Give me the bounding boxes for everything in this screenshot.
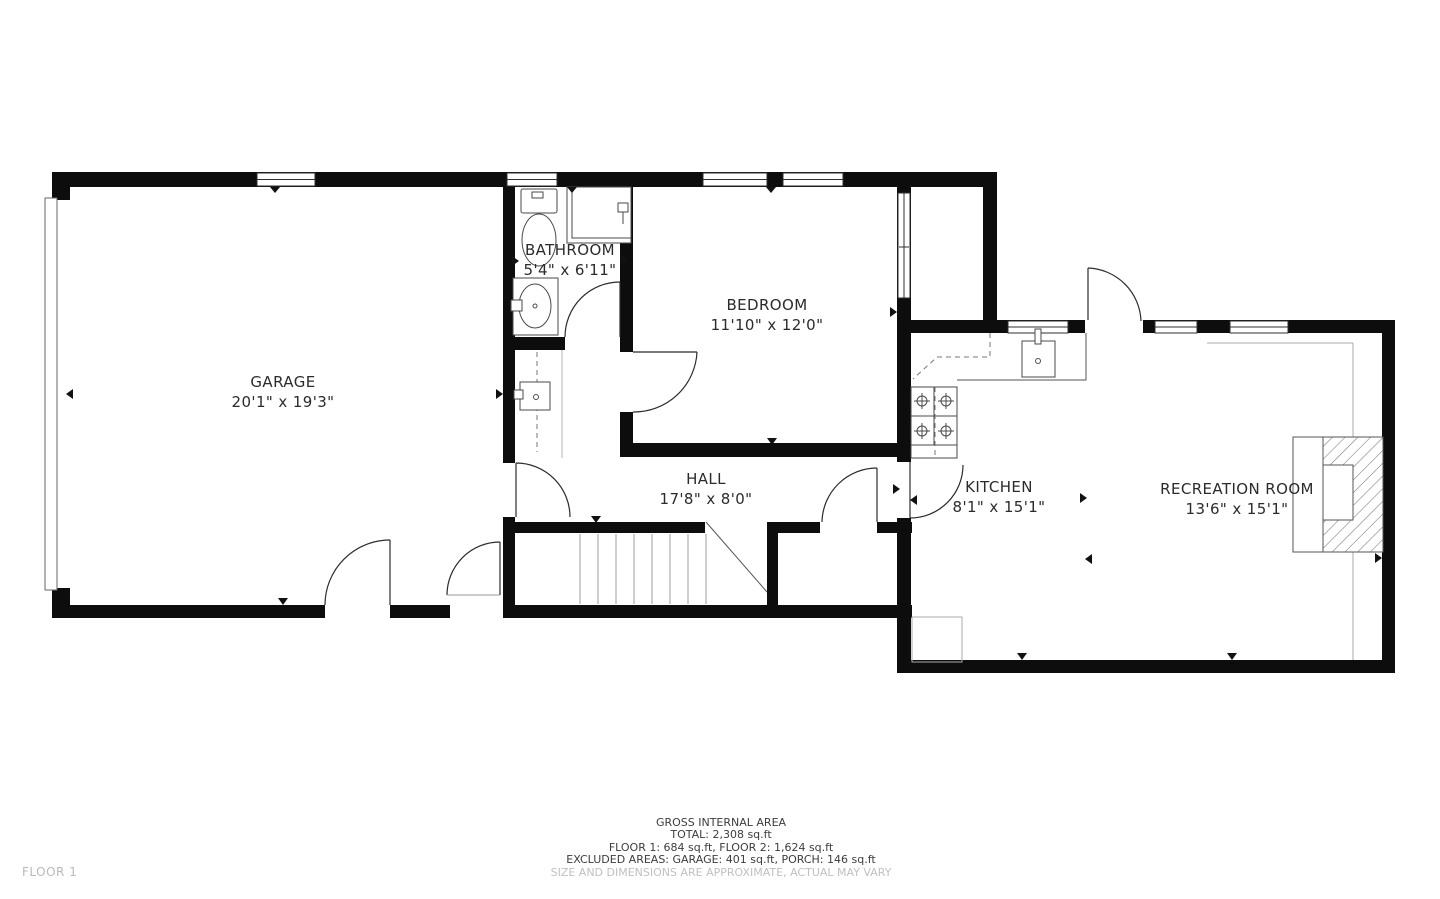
wall-bedroom-bottom	[620, 443, 912, 457]
wall-kitchen-rec-top	[910, 320, 1395, 333]
stove-icon	[911, 387, 957, 458]
door-garage-bottom-2	[447, 542, 503, 618]
room-label-kitchen: KITCHEN 8'1" x 15'1"	[953, 477, 1046, 517]
door-kitchen-exterior	[1085, 268, 1143, 333]
staircase-icon	[580, 522, 767, 604]
marker-right-icon	[496, 389, 503, 399]
door-bathroom	[565, 282, 620, 350]
room-dims: 13'6" x 15'1"	[1160, 499, 1314, 519]
wall-porch-right	[983, 172, 997, 333]
kitchen-sink-icon	[1022, 329, 1055, 377]
room-dims: 8'1" x 15'1"	[953, 497, 1046, 517]
floor-label: FLOOR 1	[22, 865, 77, 879]
wall-entry-left	[767, 522, 778, 618]
room-label-hall: HALL 17'8" x 8'0"	[660, 469, 753, 509]
marker-left-icon	[66, 389, 73, 399]
door-entry-room	[820, 468, 877, 533]
door-garage-bottom-1	[325, 540, 390, 618]
window-icon	[257, 173, 315, 186]
room-label-bedroom: BEDROOM 11'10" x 12'0"	[711, 295, 824, 335]
marker-down-icon	[591, 516, 601, 523]
window-icon	[1155, 321, 1197, 333]
room-name: KITCHEN	[953, 477, 1046, 497]
area-summary-excluded: EXCLUDED AREAS: GARAGE: 401 sq.ft, PORCH…	[551, 854, 892, 866]
room-label-garage: GARAGE 20'1" x 19'3"	[232, 372, 335, 412]
garage-door-icon	[45, 198, 57, 590]
room-dims: 5'4" x 6'11"	[524, 260, 617, 280]
marker-right-icon	[1375, 553, 1382, 563]
shower-icon	[567, 187, 631, 243]
room-dims: 11'10" x 12'0"	[711, 315, 824, 335]
marker-down-icon	[270, 187, 280, 193]
wall-garage-right	[503, 186, 515, 605]
marker-right-icon	[1080, 493, 1087, 503]
room-name: GARAGE	[232, 372, 335, 392]
room-name: RECREATION ROOM	[1160, 479, 1314, 499]
wall-rec-bottom	[897, 660, 1395, 673]
window-icon	[1230, 321, 1288, 333]
room-name: HALL	[660, 469, 753, 489]
room-dims: 20'1" x 19'3"	[232, 392, 335, 412]
marker-down-icon	[766, 187, 776, 193]
area-summary-total: TOTAL: 2,308 sq.ft	[551, 829, 892, 841]
marker-left-icon	[1085, 554, 1092, 564]
window-icon	[507, 173, 557, 186]
area-summary-disclaimer: SIZE AND DIMENSIONS ARE APPROXIMATE, ACT…	[551, 867, 892, 879]
marker-down-icon	[1017, 653, 1027, 660]
floor-plan-drawing	[0, 0, 1440, 899]
wall-garage-left-top	[52, 172, 70, 200]
door-bedroom	[620, 352, 697, 412]
marker-down-icon	[1227, 653, 1237, 660]
room-label-bathroom: BATHROOM 5'4" x 6'11"	[524, 240, 617, 280]
marker-down-icon	[278, 598, 288, 605]
kitchen-fixtures	[911, 329, 1086, 458]
counter-dashed-line	[913, 333, 990, 379]
wall-rec-right	[1382, 320, 1395, 673]
area-summary: GROSS INTERNAL AREA TOTAL: 2,308 sq.ft F…	[551, 817, 892, 879]
marker-right-icon	[512, 256, 519, 266]
utility-box-icon	[912, 617, 962, 662]
window-icon	[783, 173, 843, 186]
room-name: BEDROOM	[711, 295, 824, 315]
door-garage-to-hall	[503, 463, 570, 517]
direction-markers	[66, 187, 1382, 660]
bathroom-sink-icon	[511, 278, 558, 335]
closet-unit-icon	[514, 350, 562, 458]
marker-left-icon	[910, 495, 917, 505]
room-name: BATHROOM	[524, 240, 617, 260]
marker-right-icon	[890, 307, 897, 317]
room-dims: 17'8" x 8'0"	[660, 489, 753, 509]
window-icon	[898, 193, 910, 298]
floor-plan-page: GARAGE 20'1" x 19'3" BATHROOM 5'4" x 6'1…	[0, 0, 1440, 899]
window-icon	[703, 173, 767, 186]
bathroom-fixtures	[511, 187, 631, 458]
walls	[52, 172, 1395, 673]
room-label-recreation-room: RECREATION ROOM 13'6" x 15'1"	[1160, 479, 1314, 519]
